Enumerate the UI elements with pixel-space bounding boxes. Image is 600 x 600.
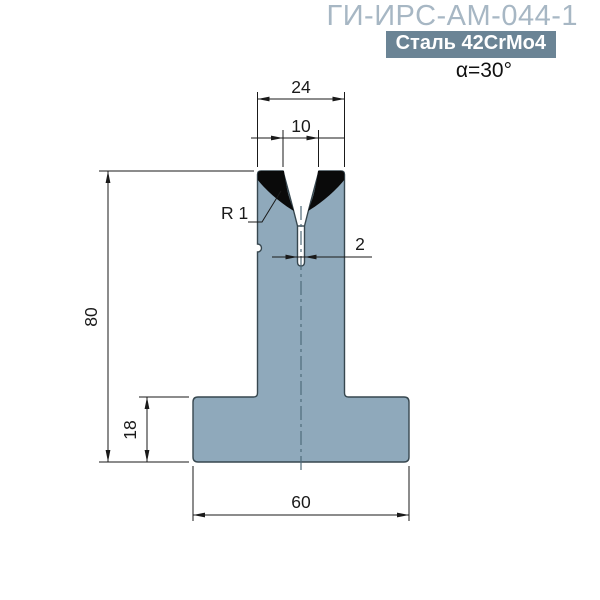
dim-18-base-height: 18 — [120, 397, 189, 462]
arrowhead — [145, 450, 150, 462]
arrowhead — [271, 136, 283, 141]
arrowhead — [106, 171, 111, 183]
dim-24-label: 24 — [291, 77, 311, 97]
dim-2-label: 2 — [355, 234, 365, 254]
dim-80-label: 80 — [81, 307, 101, 327]
technical-drawing: 24 10 2 80 — [0, 0, 600, 600]
arrowhead — [106, 450, 111, 462]
dim-10-vee-opening: 10 — [251, 116, 345, 167]
dim-60-base-width: 60 — [193, 466, 409, 521]
material-badge: Сталь 42CrMo4 — [386, 31, 556, 58]
angle-annotation: α=30° — [456, 59, 512, 83]
arrowhead — [307, 136, 319, 141]
drawing-page: 24 10 2 80 — [0, 0, 600, 600]
radius-label: R 1 — [221, 203, 248, 223]
part-number-title: ГИ-ИРС-АМ-044-1 — [327, 0, 579, 33]
arrowhead — [397, 513, 409, 518]
arrowhead — [333, 97, 345, 102]
dim-18-label: 18 — [120, 420, 140, 439]
arrowhead — [193, 513, 205, 518]
dim-60-label: 60 — [291, 492, 311, 512]
dim-10-label: 10 — [291, 116, 311, 136]
arrowhead — [258, 97, 270, 102]
arrowhead — [145, 397, 150, 409]
